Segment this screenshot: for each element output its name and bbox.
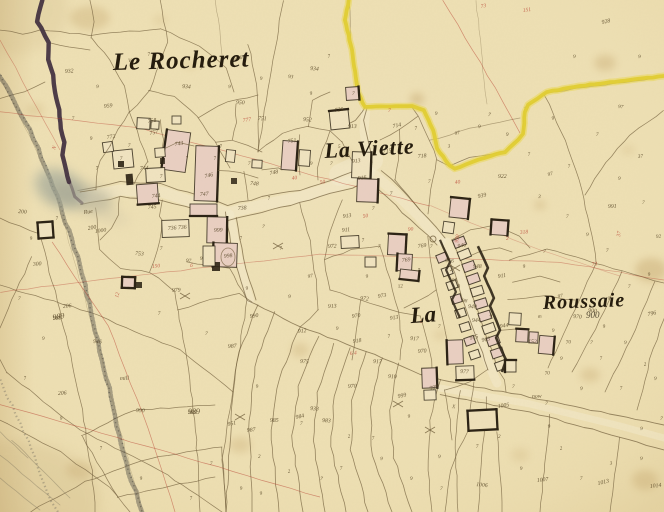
svg-text:950: 950	[236, 100, 245, 106]
svg-text:50: 50	[319, 179, 326, 186]
svg-text:777: 777	[242, 117, 251, 124]
svg-text:944: 944	[472, 317, 481, 324]
svg-text:972: 972	[328, 244, 337, 250]
svg-text:9: 9	[42, 336, 45, 342]
svg-text:983: 983	[322, 418, 331, 424]
svg-text:La Viette: La Viette	[323, 133, 415, 163]
svg-text:Le Rocheret: Le Rocheret	[111, 45, 249, 76]
svg-text:932: 932	[65, 68, 74, 75]
svg-text:970: 970	[418, 348, 427, 355]
svg-text:753: 753	[135, 251, 144, 258]
svg-text:933: 933	[310, 406, 319, 413]
svg-text:900: 900	[586, 310, 600, 320]
svg-text:952: 952	[303, 117, 312, 123]
svg-text:3: 3	[458, 314, 461, 320]
svg-text:206: 206	[63, 303, 72, 310]
svg-text:948: 948	[473, 263, 482, 270]
svg-text:959: 959	[104, 103, 113, 110]
svg-text:946: 946	[93, 338, 102, 346]
svg-text:206: 206	[58, 391, 67, 397]
svg-text:2: 2	[506, 236, 509, 242]
svg-text:769: 769	[417, 243, 427, 250]
svg-text:918: 918	[352, 338, 362, 345]
svg-text:1006: 1006	[476, 482, 488, 489]
svg-text:999: 999	[214, 228, 223, 234]
svg-text:934: 934	[310, 65, 319, 73]
svg-text:9: 9	[560, 356, 563, 362]
svg-text:910: 910	[388, 374, 397, 380]
svg-text:987: 987	[228, 343, 238, 350]
svg-text:916: 916	[357, 175, 366, 182]
svg-text:911: 911	[497, 273, 506, 280]
svg-text:Roussaie: Roussaie	[541, 289, 625, 314]
svg-text:7: 7	[438, 324, 441, 330]
svg-text:97: 97	[618, 104, 624, 110]
svg-text:934: 934	[182, 83, 191, 90]
svg-text:922: 922	[498, 174, 507, 180]
svg-text:150: 150	[152, 263, 161, 270]
svg-text:6 4: 6 4	[350, 349, 358, 357]
svg-text:37: 37	[638, 153, 644, 160]
svg-text:151: 151	[522, 7, 531, 14]
svg-text:40: 40	[454, 178, 460, 186]
svg-text:916: 916	[445, 258, 454, 265]
svg-text:93: 93	[288, 74, 294, 80]
svg-text:744: 744	[140, 165, 149, 172]
svg-text:917: 917	[410, 336, 420, 343]
svg-text:972: 972	[360, 296, 369, 303]
svg-text:200: 200	[18, 209, 27, 216]
svg-text:718: 718	[418, 153, 427, 160]
svg-text:769: 769	[402, 257, 411, 264]
svg-text:913: 913	[348, 124, 357, 130]
svg-text:970: 970	[348, 384, 357, 390]
svg-text:744: 744	[151, 192, 161, 200]
svg-text:989: 989	[188, 407, 200, 416]
svg-text:940: 940	[468, 303, 477, 310]
svg-text:7: 7	[428, 179, 431, 185]
svg-text:90: 90	[408, 227, 414, 233]
svg-text:977: 977	[460, 369, 470, 376]
svg-text:300: 300	[32, 261, 42, 268]
svg-text:745: 745	[148, 203, 157, 211]
svg-text:975: 975	[300, 359, 309, 365]
svg-text:73: 73	[591, 261, 598, 268]
svg-text:990: 990	[136, 408, 145, 414]
svg-text:998: 998	[224, 253, 233, 260]
svg-text:913: 913	[342, 213, 352, 220]
svg-text:913: 913	[328, 304, 337, 310]
svg-text:970: 970	[573, 314, 582, 321]
svg-text:738: 738	[238, 205, 247, 212]
svg-text:92: 92	[656, 234, 662, 240]
svg-text:97: 97	[186, 258, 192, 264]
svg-text:985: 985	[270, 418, 279, 424]
svg-text:944: 944	[499, 322, 509, 330]
svg-text:now: now	[532, 394, 542, 400]
svg-text:98: 98	[462, 298, 468, 304]
svg-text:mill: mill	[120, 376, 130, 382]
svg-text:318: 318	[519, 229, 529, 236]
svg-text:979: 979	[172, 288, 181, 294]
svg-text:970: 970	[351, 313, 361, 320]
svg-text:37: 37	[616, 231, 623, 239]
svg-text:La: La	[409, 301, 437, 328]
svg-text:917: 917	[373, 359, 383, 365]
svg-text:751: 751	[287, 138, 297, 145]
svg-text:747: 747	[200, 190, 210, 198]
svg-text:9: 9	[618, 176, 621, 182]
svg-text:751: 751	[258, 116, 267, 122]
svg-text:991: 991	[608, 204, 617, 210]
svg-text:912: 912	[298, 328, 307, 335]
svg-text:1014: 1014	[649, 482, 661, 490]
svg-text:7: 7	[388, 108, 391, 114]
svg-text:748: 748	[250, 180, 259, 188]
svg-text:152: 152	[528, 339, 537, 345]
svg-text:7: 7	[566, 214, 569, 220]
svg-text:772: 772	[106, 134, 116, 141]
svg-text:911: 911	[342, 227, 351, 234]
svg-text:990: 990	[249, 313, 259, 320]
